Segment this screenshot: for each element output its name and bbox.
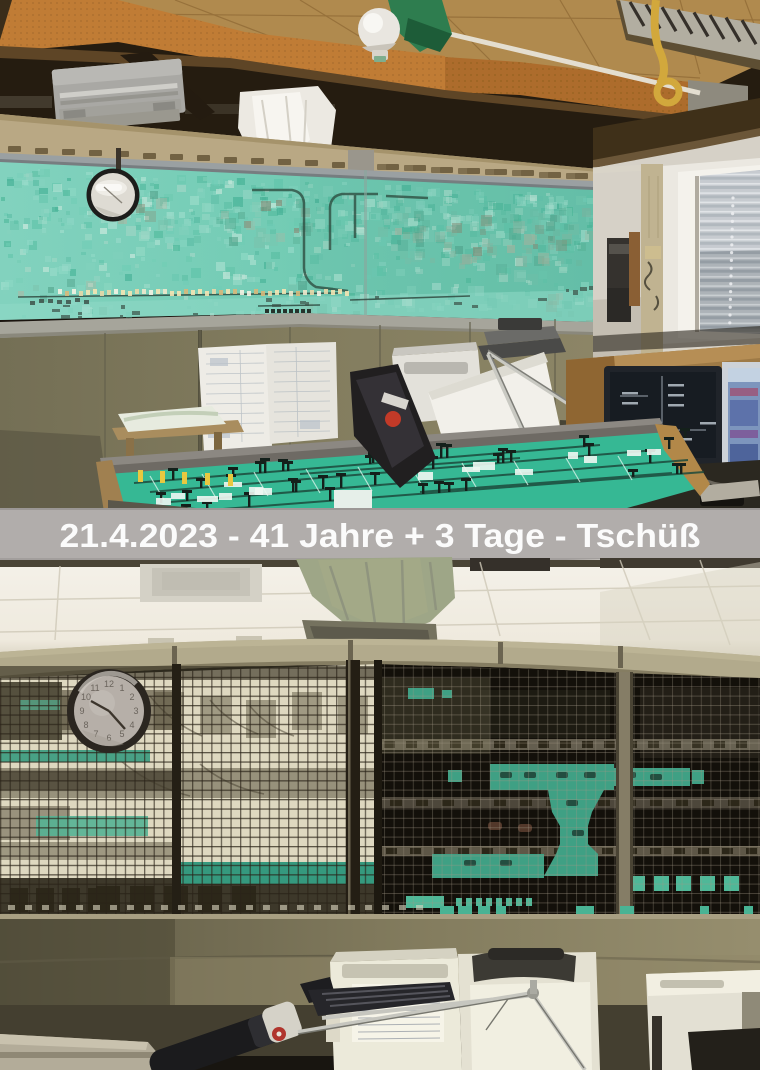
svg-text:11: 11: [90, 683, 99, 693]
svg-text:10: 10: [81, 692, 91, 702]
svg-text:1: 1: [119, 683, 124, 693]
svg-text:12: 12: [104, 679, 114, 689]
svg-text:2: 2: [129, 692, 134, 702]
svg-text:9: 9: [79, 706, 84, 716]
svg-text:4: 4: [129, 720, 134, 730]
svg-text:21.4.2023 - 41 Jahre + 3 Tage: 21.4.2023 - 41 Jahre + 3 Tage - Tschüß: [60, 517, 701, 554]
svg-text:8: 8: [83, 720, 88, 730]
svg-text:5: 5: [119, 729, 124, 739]
svg-text:3: 3: [133, 706, 138, 716]
